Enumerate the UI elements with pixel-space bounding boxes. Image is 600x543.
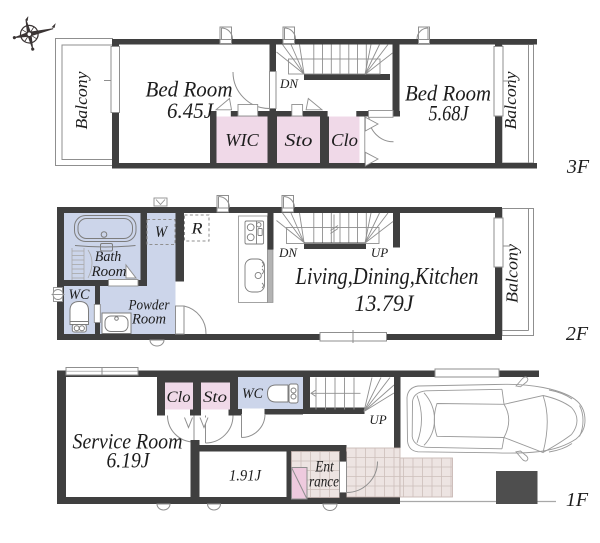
svg-text:W: W: [155, 224, 169, 241]
svg-text:Balcony: Balcony: [501, 71, 520, 129]
svg-text:6.45J: 6.45J: [167, 98, 214, 123]
svg-text:1.91J: 1.91J: [229, 468, 262, 485]
svg-text:6.19J: 6.19J: [107, 448, 151, 473]
svg-text:3F: 3F: [566, 156, 590, 178]
svg-text:2F: 2F: [566, 323, 589, 345]
svg-text:rance: rance: [309, 474, 339, 491]
svg-text:Clo: Clo: [331, 130, 358, 150]
svg-text:13.79J: 13.79J: [355, 291, 416, 316]
svg-text:Clo: Clo: [167, 389, 191, 406]
svg-text:Room: Room: [131, 312, 166, 328]
svg-text:WIC: WIC: [225, 130, 260, 150]
svg-text:5.68J: 5.68J: [429, 101, 470, 126]
svg-text:WC: WC: [242, 386, 264, 402]
svg-text:UP: UP: [371, 245, 388, 260]
svg-text:Room: Room: [91, 264, 127, 280]
svg-text:Balcony: Balcony: [503, 244, 522, 303]
svg-text:WC: WC: [69, 287, 91, 303]
svg-text:DN: DN: [278, 245, 298, 260]
svg-text:1F: 1F: [566, 489, 589, 511]
svg-text:Balcony: Balcony: [72, 71, 91, 129]
svg-text:Living,Dining,Kitchen: Living,Dining,Kitchen: [295, 264, 479, 290]
svg-text:DN: DN: [279, 76, 299, 91]
svg-text:R: R: [190, 221, 202, 238]
svg-text:UP: UP: [369, 412, 386, 427]
svg-text:Bath: Bath: [95, 249, 122, 265]
svg-text:Sto: Sto: [203, 389, 227, 406]
svg-text:Sto: Sto: [285, 130, 313, 150]
